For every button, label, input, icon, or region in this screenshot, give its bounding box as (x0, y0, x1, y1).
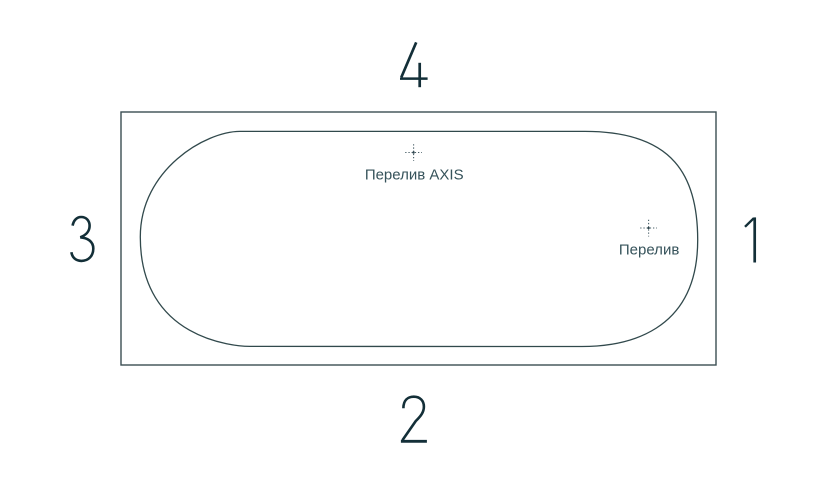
svg-text:Перелив: Перелив (619, 242, 679, 259)
svg-text:Перелив AXIS: Перелив AXIS (365, 167, 464, 184)
